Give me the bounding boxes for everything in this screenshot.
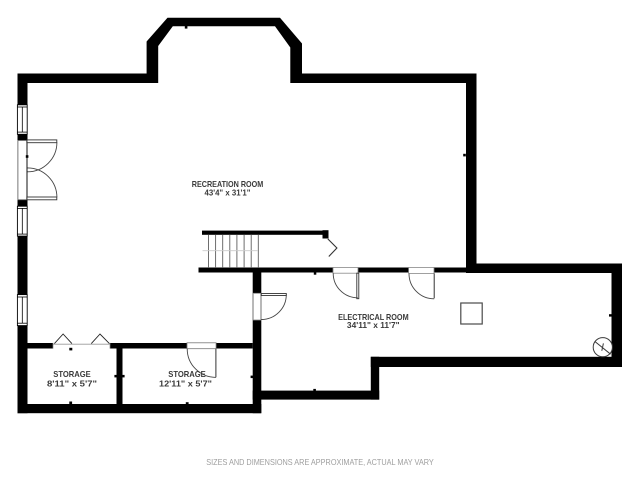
svg-text:8'11" x 5'7": 8'11" x 5'7" — [47, 380, 97, 389]
svg-text:STORAGE: STORAGE — [53, 370, 91, 379]
svg-text:43'4" x 31'1": 43'4" x 31'1" — [205, 189, 251, 198]
svg-text:12'11" x 5'7": 12'11" x 5'7" — [159, 380, 212, 389]
svg-text:SIZES AND DIMENSIONS ARE APPRO: SIZES AND DIMENSIONS ARE APPROXIMATE, AC… — [206, 458, 434, 467]
svg-text:STORAGE: STORAGE — [168, 370, 206, 379]
svg-text:RECREATION ROOM: RECREATION ROOM — [192, 180, 264, 189]
svg-text:34'11" x 11'7": 34'11" x 11'7" — [347, 321, 400, 330]
